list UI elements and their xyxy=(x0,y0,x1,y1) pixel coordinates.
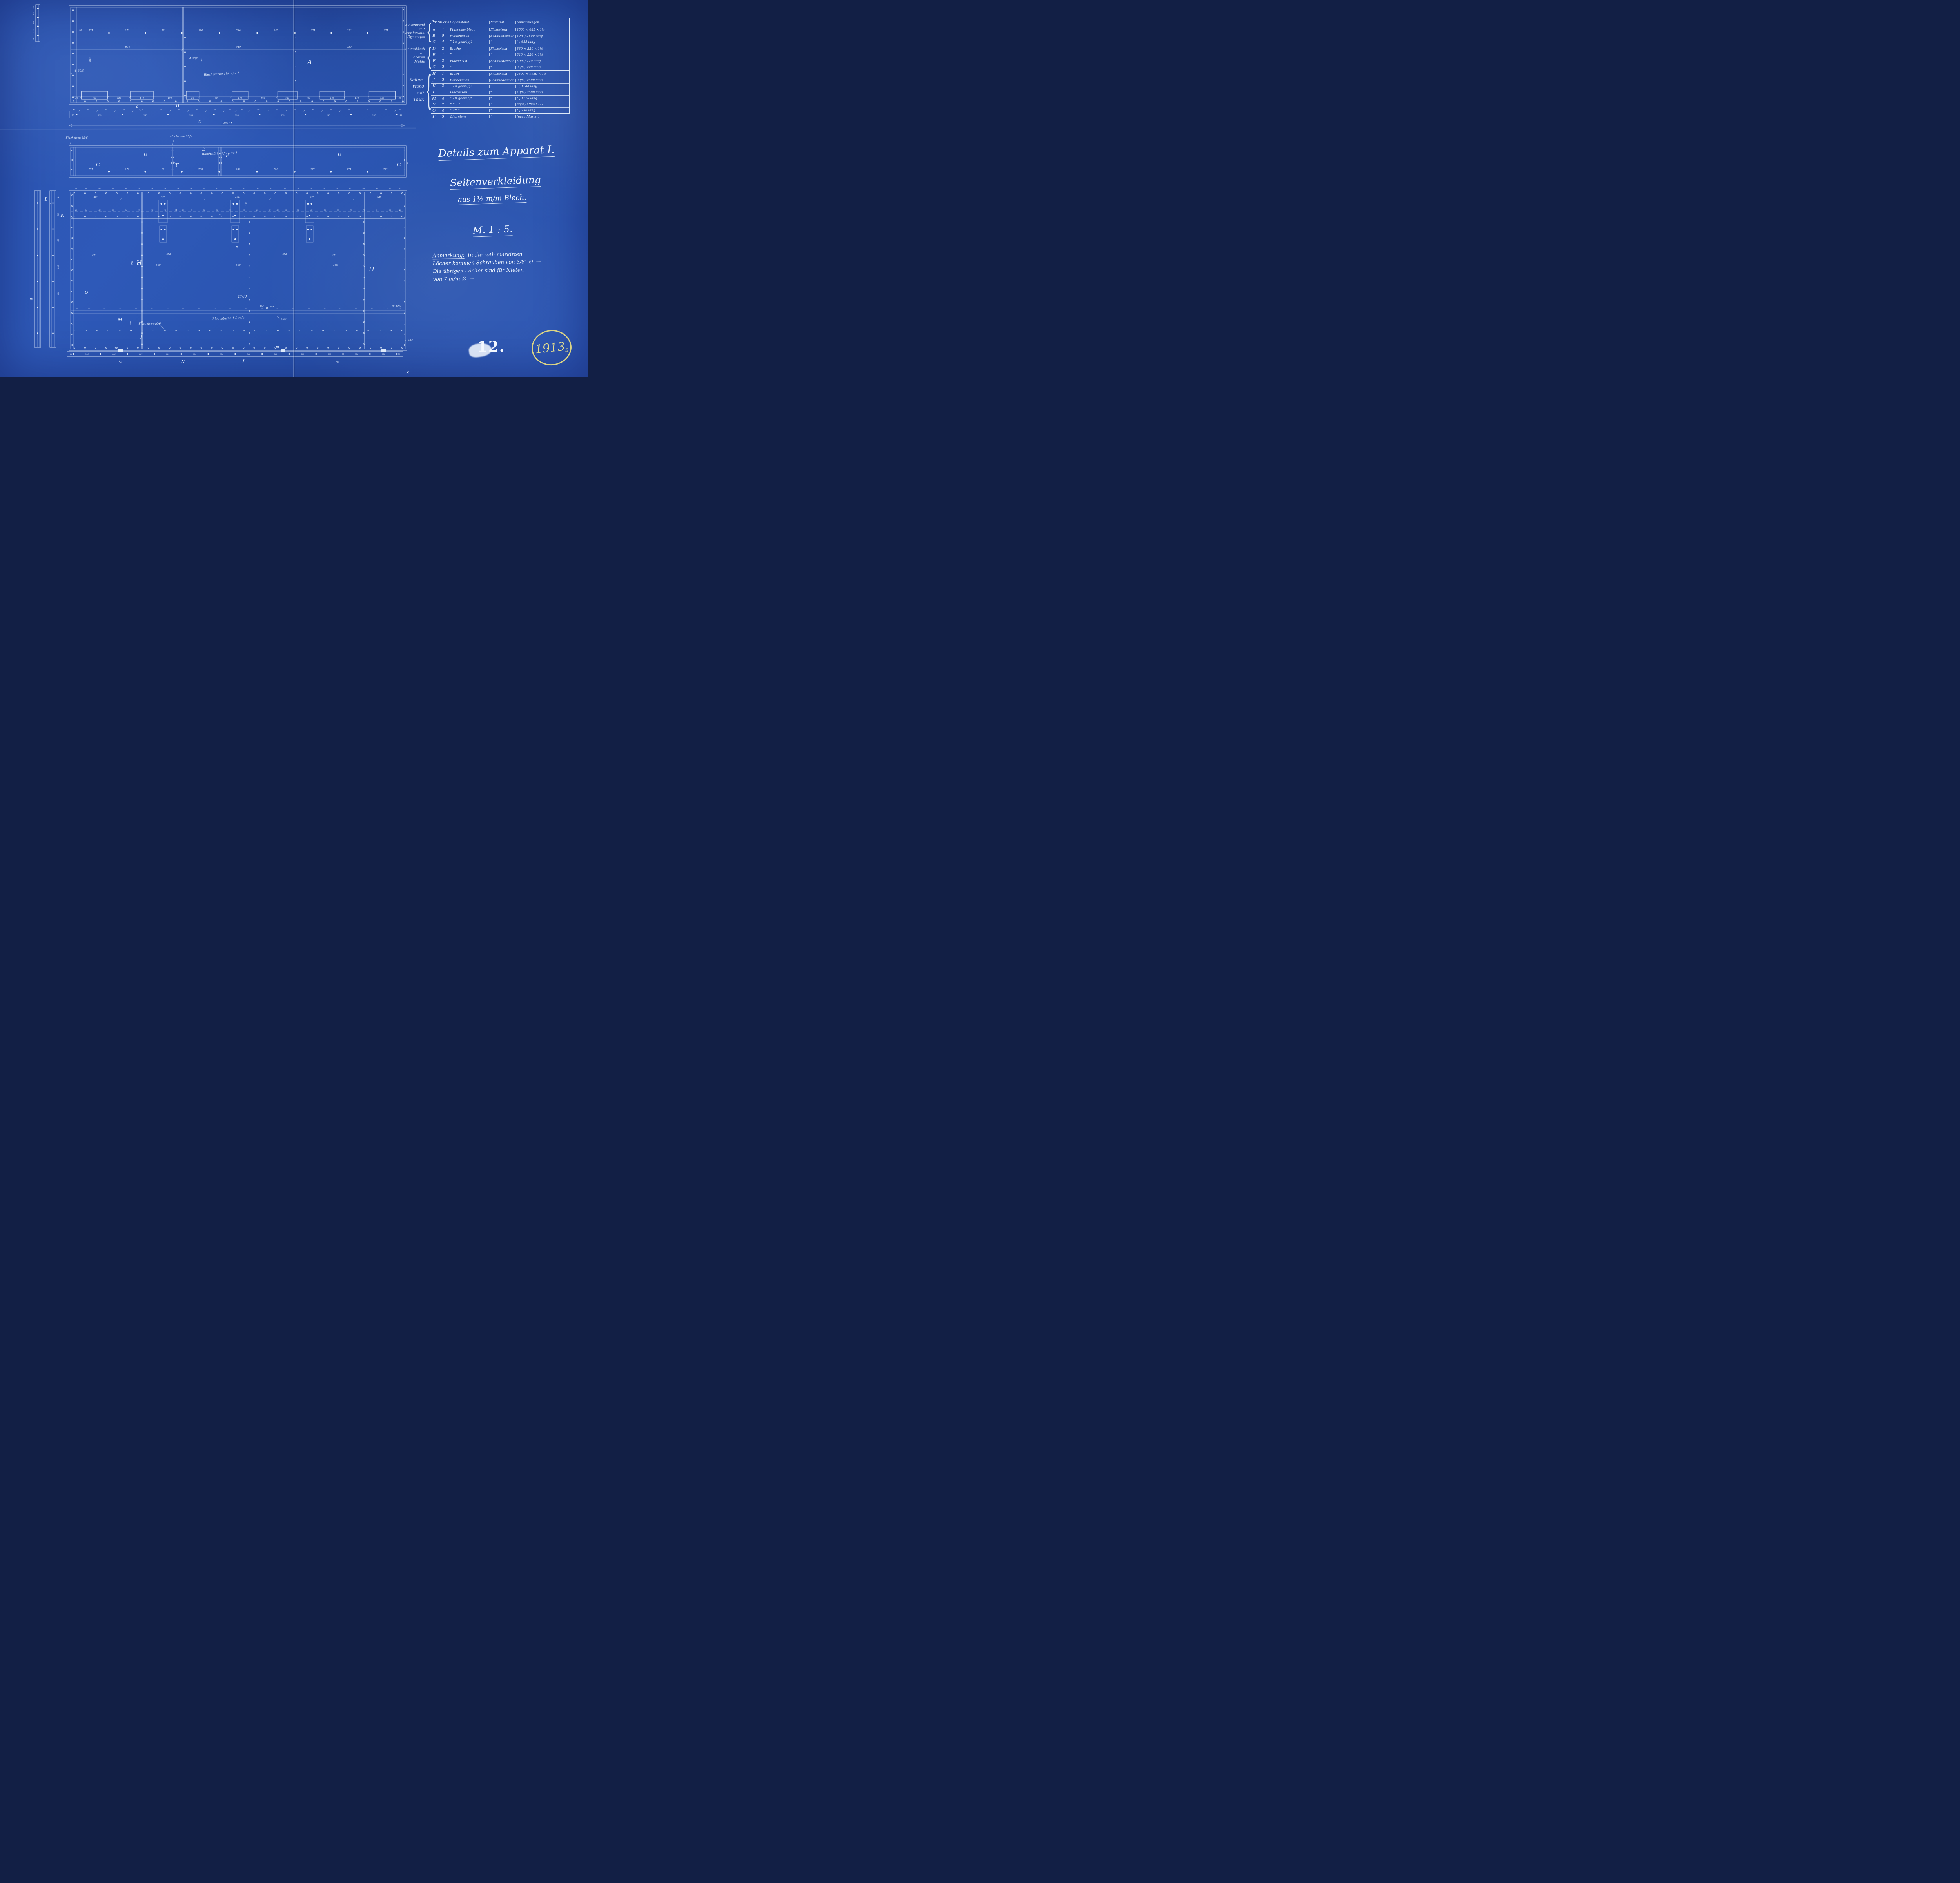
dim-chain-label: 80 xyxy=(142,108,143,110)
stamp-year: 1913 xyxy=(534,340,566,356)
annotation-flacheisen-35-6: Flacheisen 35/6 xyxy=(65,136,88,140)
table-row-M: M4” 1× gekröpft”” ; 1170 lang xyxy=(431,96,569,102)
dim-chain-label: 43 xyxy=(398,308,401,310)
annotation-flacheisen-50-6: Flacheisen 50/6 xyxy=(170,135,192,138)
label-f-left: F xyxy=(175,163,179,168)
label-e: E xyxy=(202,146,206,152)
dim-15: 15 xyxy=(137,264,139,266)
table-row-P: P3Charniere”(nach Muster) xyxy=(431,114,569,120)
table-cell-qty: 2 xyxy=(437,103,449,107)
dim-chain-label: 300 xyxy=(355,353,358,356)
dim-chain-label: 280 xyxy=(236,29,241,32)
table-cell-material: ” xyxy=(490,97,516,100)
dim-12-5: 12.5 xyxy=(33,5,35,9)
label-strip-a: a xyxy=(136,105,138,109)
annotation-4-30-6: 4· 30/6 xyxy=(74,69,84,73)
table-cell-item: ” 2× gekröpft xyxy=(449,85,490,88)
dim-chain-label: 78 xyxy=(151,187,153,189)
dim-chain-label: 190 xyxy=(168,97,172,100)
label-o-strip: O xyxy=(119,360,122,364)
dim-chain-label: 80 xyxy=(323,308,326,310)
dim-chain-label: 82 xyxy=(270,187,273,189)
dim-chain-label: 80 xyxy=(355,308,358,310)
panel-h-view: 4380808080787878787879828281818282797878… xyxy=(69,187,413,350)
fold-crease xyxy=(0,0,416,377)
table-cell-qty: 1 xyxy=(437,53,449,57)
annotation-30-6: 30/6 xyxy=(260,305,265,308)
annotation-4-30-6-right: 4· 30/6 xyxy=(392,304,401,307)
dim-145: 145 xyxy=(33,29,35,33)
dim-chain-label: 50 xyxy=(398,353,400,356)
table-row-a: a1FlusseisenblechFlusseisen2500 × 685 × … xyxy=(431,27,569,33)
label-m-joint-1: m xyxy=(114,346,117,350)
table-cell-qty: 2 xyxy=(437,47,449,51)
dim-chain-label: 50 xyxy=(75,97,78,100)
dim-chain-label: 30 xyxy=(277,209,279,211)
dim-chain-label: 78 xyxy=(310,187,312,189)
annotation-4-30-6: 4· 30/6 xyxy=(189,57,198,60)
table-cell-item: Flacheisen xyxy=(449,91,490,94)
dim-chain-label: 80 xyxy=(348,108,350,110)
dim-290: 290 xyxy=(331,254,336,257)
dim-chain-label: 78 xyxy=(164,187,166,189)
table-cell-pos: J xyxy=(431,78,437,82)
dim-chain-label: 80 xyxy=(119,308,122,310)
label-j-rail: J xyxy=(140,334,142,339)
dim-chain-label: 300 xyxy=(98,114,102,117)
dim-chain-label: 80 xyxy=(261,308,263,310)
edge-strip-top-left: 12.5 170 145 145 94 xyxy=(33,3,40,43)
table-cell-material: ” xyxy=(490,103,516,106)
table-row-E: E1””840 × 220 × 1½ xyxy=(431,52,569,58)
label-k-edge: K xyxy=(60,213,64,218)
table-cell-notes: 30/6 ; 2500 lang xyxy=(516,79,569,82)
dim-chain-label: 80 xyxy=(339,308,342,310)
dim-chain-label: 280 xyxy=(273,168,278,171)
table-cell-item: ” 1× gekröpft xyxy=(449,97,490,100)
dim-15: 15 xyxy=(137,260,139,262)
blueprint-page: 12.5 170 145 145 94 27127127128028028027… xyxy=(0,0,588,377)
remark-note: Anmerkung: In die roth markirten Löcher … xyxy=(432,250,584,284)
dim-chain-label: 80 xyxy=(389,187,391,189)
table-cell-pos: B xyxy=(431,34,437,38)
dim-150: 150 xyxy=(130,321,132,325)
dim-chain-label: 300 xyxy=(382,353,385,356)
table-cell-notes: ” ; 730 lang xyxy=(516,109,569,112)
dim-chain-label: 271 xyxy=(383,29,388,32)
dim-chain-label: 80 xyxy=(85,209,88,211)
table-cell-qty: 1 xyxy=(437,72,449,76)
label-j-strip: J xyxy=(242,359,245,363)
table-row-L: L1Flacheisen”40/6 ; 2500 lang xyxy=(431,89,569,96)
table-cell-notes: 50/6 ; 220 lang xyxy=(516,60,569,63)
table-cell-material: ” xyxy=(490,85,516,88)
dim-chain-label: 380 xyxy=(94,196,98,199)
dim-chain-label: 82 xyxy=(230,187,232,189)
brace-group-2: { xyxy=(426,45,432,69)
dim-chain-label: 830 xyxy=(125,45,130,49)
label-strip-c: C xyxy=(198,120,201,124)
strip-b-edge-view: 4380808080808080805060808080808080808043… xyxy=(67,103,405,127)
table-cell-pos: M xyxy=(431,97,437,101)
table-cell-notes: ” ; 1188 lang xyxy=(516,85,569,88)
dim-chain-label: 300 xyxy=(143,114,147,117)
label-f-right: F xyxy=(225,153,229,158)
dim-chain-label: 80 xyxy=(276,308,279,310)
dim-chain-label: 300 xyxy=(220,353,223,356)
table-cell-item: Blech xyxy=(449,73,490,76)
middle-panel-view: 271271271280280280271271271 Flacheisen 3… xyxy=(65,135,409,177)
dim-chain-label: 78 xyxy=(216,209,219,211)
table-cell-pos: E xyxy=(431,53,437,57)
group-label-mulde: SeitenblechzuroberenMulde xyxy=(395,47,425,64)
table-row-H: H1BlechFlusseisen2500 × 1150 × 1½ xyxy=(431,71,569,78)
label-m-joint-2: m xyxy=(276,345,279,349)
dim-chain-label: 78 xyxy=(138,209,141,211)
dim-chain-label: 280 xyxy=(236,168,241,171)
dim-chain-label: 79 xyxy=(297,187,299,189)
dim-chain-label: 78 xyxy=(203,209,206,211)
dim-188: 188 xyxy=(57,292,60,295)
dim-chain-label: 271 xyxy=(310,29,315,32)
annotation-blechstaerke-h: Blechstärke 1½ m/m xyxy=(212,316,246,321)
dim-220: 220 xyxy=(407,160,409,165)
dim-chain-label: 80 xyxy=(229,308,232,310)
dim-chain-label: 50 xyxy=(70,353,73,356)
dim-chain-label: 50 xyxy=(399,114,402,117)
table-cell-notes: 30/6 ; 2500 lang xyxy=(516,35,569,38)
table-cell-qty: 3 xyxy=(437,115,449,119)
dim-chain-label: 300 xyxy=(85,353,89,356)
dim-chain-label: 80 xyxy=(385,108,387,110)
table-cell-material: ” xyxy=(490,115,516,118)
header-material: Material. xyxy=(490,21,516,24)
table-cell-item: ” xyxy=(449,53,490,56)
remark-line-1: In die roth markirten xyxy=(468,251,523,258)
table-row-G: G2””35/6 ; 220 lang xyxy=(431,64,569,71)
label-g-left: G xyxy=(96,162,100,167)
table-cell-item: Winkeleisen xyxy=(449,35,490,38)
dim-chain-label: 80 xyxy=(103,308,106,310)
dim-44: 44 xyxy=(57,196,60,198)
dim-chain-label: 80 xyxy=(123,108,125,110)
dim-chain-label: 840 xyxy=(236,45,241,49)
dim-chain-label: 66 xyxy=(285,209,287,211)
label-strip-b: B xyxy=(176,103,180,108)
table-cell-material: Schmiedeeisen xyxy=(490,79,516,82)
dim-chain-label: 80 xyxy=(99,209,101,211)
dim-chain-label: 80 xyxy=(363,187,365,189)
table-cell-qty: 4 xyxy=(437,109,449,113)
table-cell-pos: F xyxy=(431,59,437,63)
bottom-edge-strip: 5030030030030030030030030030030030030050… xyxy=(67,345,410,375)
dim-chain-label: 80 xyxy=(87,108,89,110)
label-k-strip: K xyxy=(406,370,410,375)
dim-chain-label: 81 xyxy=(243,187,245,189)
header-item: Gegenstand: xyxy=(449,21,490,24)
dim-94: 94 xyxy=(33,37,35,40)
dim-chain-label: 271 xyxy=(383,168,388,171)
dim-chain-label: 300 xyxy=(281,114,285,117)
dim-290: 290 xyxy=(91,254,96,257)
dim-chain-label: 80 xyxy=(349,187,352,189)
dim-chain-label: 82 xyxy=(256,209,259,211)
dim-total-2500: 2500 xyxy=(223,122,232,125)
label-n-rail2: n xyxy=(266,306,268,309)
dim-700: 700 xyxy=(131,260,134,265)
label-h-right: H xyxy=(368,265,375,273)
hinge-plate xyxy=(159,200,167,242)
dim-570: 570 xyxy=(166,253,171,256)
table-cell-pos: K xyxy=(431,84,437,88)
dim-chain-label: 43 xyxy=(399,187,401,189)
dim-chain-label: 80 xyxy=(258,108,260,110)
table-cell-item: Bleche xyxy=(449,47,490,51)
dim-chain-label: 80 xyxy=(376,187,378,189)
table-cell-qty: 1 xyxy=(437,28,449,32)
dim-chain-label: 625 xyxy=(310,196,314,199)
table-row-K: K2” 2× gekröpft”” ; 1188 lang xyxy=(431,84,569,90)
dim-chain-label: 271 xyxy=(88,29,93,32)
dim-chain-label: 300 xyxy=(166,353,170,356)
dim-chain-label: 80 xyxy=(167,308,169,310)
annotation-flacheisen-40-6: Flacheisen 40/6 xyxy=(138,322,161,325)
header-qty: Stück-zahl xyxy=(437,21,449,24)
table-cell-pos: D xyxy=(431,47,437,51)
header-notes: Anmerkungen. xyxy=(516,21,569,24)
table-cell-material: Flusseisen xyxy=(490,28,516,31)
dim-chain-label: 78 xyxy=(138,187,140,189)
dim-chain-label: 79 xyxy=(203,187,205,189)
dim-chain-label: 80 xyxy=(389,209,391,211)
dim-chain-label: 80 xyxy=(98,187,101,189)
table-cell-qty: 2 xyxy=(437,84,449,88)
dim-560: 560 xyxy=(333,264,338,267)
dim-chain-label: 80 xyxy=(85,187,88,189)
dim-chain-label: 271 xyxy=(347,29,352,32)
table-row-N: N2” 3× ””30/6 ; 1780 lang xyxy=(431,102,569,108)
dim-chain-label: 80 xyxy=(376,209,378,211)
dim-chain-label: 80 xyxy=(198,308,200,310)
label-m-profile: m xyxy=(29,297,33,301)
label-n-strip: N xyxy=(181,360,185,364)
annotation-40-6: 40/6 xyxy=(281,318,287,320)
table-cell-material: Flusseisen xyxy=(490,47,516,51)
group-label-ventilation: SeitenwandmitVentilations-Öffnungen xyxy=(395,23,425,39)
table-cell-qty: 4 xyxy=(437,97,449,101)
hinge-plate xyxy=(305,200,314,242)
table-row-D: D2BlecheFlusseisen830 × 220 × 1½ xyxy=(431,46,569,53)
table-cell-notes: 35/6 ; 220 lang xyxy=(516,66,569,69)
stamp-suffix: s xyxy=(565,345,569,353)
dim-chain-label: 300 xyxy=(247,353,250,356)
dim-chain-label: 271 xyxy=(88,168,93,171)
label-n-rail: n xyxy=(218,213,221,217)
table-row-B: B5WinkeleisenSchmiedeeisen30/6 ; 2500 la… xyxy=(431,33,569,40)
table-cell-material: ” xyxy=(490,109,516,112)
dim-chain-label: 80 xyxy=(88,308,90,310)
dim-chain-label: 80 xyxy=(330,108,332,110)
table-cell-notes: 2500 × 1150 × 1½ xyxy=(516,73,569,76)
dim-chain-label: 300 xyxy=(189,114,193,117)
dim-chain-label: 66 xyxy=(269,209,271,211)
dim-chain-label: 78 xyxy=(323,187,325,189)
table-cell-item: ” 1× gekröpft xyxy=(449,40,490,44)
dim-chain-label: 78 xyxy=(190,187,192,189)
dim-chain-label: 75 xyxy=(363,209,365,211)
table-cell-notes: 2500 × 685 × 1½ xyxy=(516,28,569,31)
dim-chain-label: 78 xyxy=(336,187,338,189)
label-l-profile: L xyxy=(44,196,48,202)
label-g-right: G xyxy=(397,162,401,167)
label-m-strip: m xyxy=(336,361,339,365)
dim-chain-label: 80 xyxy=(178,108,180,110)
table-row-J: J2WinkeleisenSchmiedeeisen30/6 ; 2500 la… xyxy=(431,77,569,84)
dim-chain-label: 300 xyxy=(112,353,116,356)
table-cell-qty: 2 xyxy=(437,59,449,63)
dim-chain-label: 271 xyxy=(161,168,165,171)
dim-chain-label: 80 xyxy=(214,308,216,310)
dim-chain-label: 80 xyxy=(308,308,310,310)
table-cell-qty: 2 xyxy=(437,78,449,82)
label-d-right: D xyxy=(337,152,341,157)
table-cell-notes: 830 × 220 × 1½ xyxy=(516,47,569,51)
dim-chain-label: 50 xyxy=(72,114,74,117)
label-o-left: O xyxy=(85,290,88,295)
dim-chain-label: 300 xyxy=(193,353,197,356)
table-row-F: F2FlacheisenSchmiedeeisen50/6 ; 220 lang xyxy=(431,58,569,65)
label-m-rail: M xyxy=(117,317,122,322)
dim-chain-label: 300 xyxy=(235,114,239,117)
dim-chain-label: 80 xyxy=(387,308,389,310)
table-cell-pos: C xyxy=(431,40,437,44)
dim-chain-label: 43 xyxy=(75,209,78,211)
table-cell-item: Winkeleisen xyxy=(449,79,490,82)
dim-chain-label: 43 xyxy=(73,108,75,110)
remark-label: Anmerkung: xyxy=(432,252,465,259)
dim-chain-label: 280 xyxy=(198,168,203,171)
dim-chain-label: 271 xyxy=(125,29,129,32)
table-cell-pos: L xyxy=(431,91,437,94)
table-cell-material: Flusseisen xyxy=(490,73,516,76)
dim-chain-label: 625 xyxy=(161,196,165,199)
dim-chain-label: 78 xyxy=(151,209,154,211)
parts-table-body: a1FlusseisenblechFlusseisen2500 × 685 × … xyxy=(431,27,569,120)
dim-chain-label: 82 xyxy=(216,187,219,189)
dim-chain-label: 170 xyxy=(261,97,265,100)
dim-chain-label: 80 xyxy=(182,308,185,310)
dim-chain-label: 81 xyxy=(257,187,259,189)
table-cell-item: ” 3× ” xyxy=(449,103,490,106)
dim-chain-label: 80 xyxy=(245,308,247,310)
dim-chain-label: 78 xyxy=(337,209,339,211)
annotation-l-40-6: ∟ 40/6 xyxy=(405,339,414,342)
label-panel-a: A xyxy=(307,58,312,66)
table-cell-pos: O xyxy=(431,109,437,113)
dim-chain-label: 300 xyxy=(328,353,331,356)
dim-250: 250 xyxy=(245,202,248,206)
dim-chain-label: 80 xyxy=(196,108,198,110)
dim-chain-label: 300 xyxy=(327,114,330,117)
dim-chain-label: 490 xyxy=(235,196,240,199)
table-row-C: C4” 1× gekröpft”” ; 685 lang xyxy=(431,39,569,46)
annotation-30-6: 30/6 xyxy=(270,306,275,308)
dim-chain-label: 82 xyxy=(297,209,299,211)
table-cell-material: ” xyxy=(490,40,516,44)
sheet-number: 12. xyxy=(477,338,505,355)
table-cell-notes: 30/6 ; 1780 lang xyxy=(516,103,569,106)
dim-chain-label: 130 xyxy=(307,97,311,100)
table-cell-notes: 840 × 220 × 1½ xyxy=(516,53,569,56)
table-cell-item: ” xyxy=(449,66,490,69)
table-cell-pos: G xyxy=(431,65,437,69)
group-label-thuer: Seiten-WandmitThür. xyxy=(393,77,424,103)
table-row-O: O4” 2× ””” ; 730 lang xyxy=(431,108,569,114)
dim-525: 525 xyxy=(201,57,203,62)
table-cell-pos: H xyxy=(431,72,437,76)
label-d-left: D xyxy=(143,152,147,157)
label-hinge-p: P xyxy=(235,245,238,251)
dim-chain-label: 80 xyxy=(112,209,114,211)
dim-570: 570 xyxy=(282,253,287,256)
dim-chain-label: 271 xyxy=(310,168,315,171)
table-cell-notes: ” ; 1170 lang xyxy=(516,97,569,100)
annotation-blechstaerke-a: Blechstärke 1½ m/m ! xyxy=(203,71,239,77)
table-cell-item: Flacheisen xyxy=(449,60,490,63)
dim-chain-label: 80 xyxy=(367,108,368,110)
dim-chain-label: 190 xyxy=(213,97,218,100)
dim-chain-label: 130 xyxy=(117,97,121,100)
dim-chain-label: 80 xyxy=(151,308,153,310)
dim-chain-label: 43 xyxy=(75,187,78,189)
dim-chain-label: 43 xyxy=(75,308,78,310)
dim-chain-label: 43 xyxy=(398,108,401,110)
table-cell-qty: 1 xyxy=(437,91,449,94)
dim-chain-label: 78 xyxy=(177,187,179,189)
dim-chain-label: 82 xyxy=(284,187,286,189)
table-cell-material: ” xyxy=(490,66,516,69)
dim-chain-label: 80 xyxy=(135,308,137,310)
dim-chain-label: 80 xyxy=(105,108,107,110)
table-cell-pos: P xyxy=(431,115,437,119)
dim-chain-label: 380 xyxy=(377,196,381,199)
header-pos: Pos. xyxy=(431,20,437,24)
dim-chain-label: 300 xyxy=(372,114,376,117)
dim-chain-label: 30 xyxy=(182,209,184,211)
table-cell-pos: a xyxy=(431,28,437,32)
dim-560: 560 xyxy=(156,264,161,267)
table-cell-item: ” 2× ” xyxy=(449,109,490,112)
dim-chain-label: 300 xyxy=(301,353,305,356)
dim-chain-label: 80 xyxy=(160,108,162,110)
dim-chain-label: 140 xyxy=(355,97,359,100)
dim-chain-label: 80 xyxy=(112,187,114,189)
dim-chain-label: 75 xyxy=(191,209,193,211)
dim-685: 685 xyxy=(89,57,92,62)
table-cell-material: ” xyxy=(490,91,516,94)
dim-chain-label: 271 xyxy=(125,168,129,171)
dim-chain-label: 300 xyxy=(274,353,278,356)
dim-13: 13 xyxy=(79,29,82,31)
table-cell-notes: 40/6 ; 2500 lang xyxy=(516,91,569,94)
hinge-plate xyxy=(231,200,240,242)
dim-188: 188 xyxy=(57,213,60,216)
left-edge-profiles: L m K 44 188 188 188 188 xyxy=(29,191,64,347)
table-cell-qty: 5 xyxy=(437,34,449,38)
dim-chain-label: 78 xyxy=(350,209,352,211)
dim-chain-label: 79 xyxy=(324,209,326,211)
dim-chain-label: 80 xyxy=(125,187,127,189)
